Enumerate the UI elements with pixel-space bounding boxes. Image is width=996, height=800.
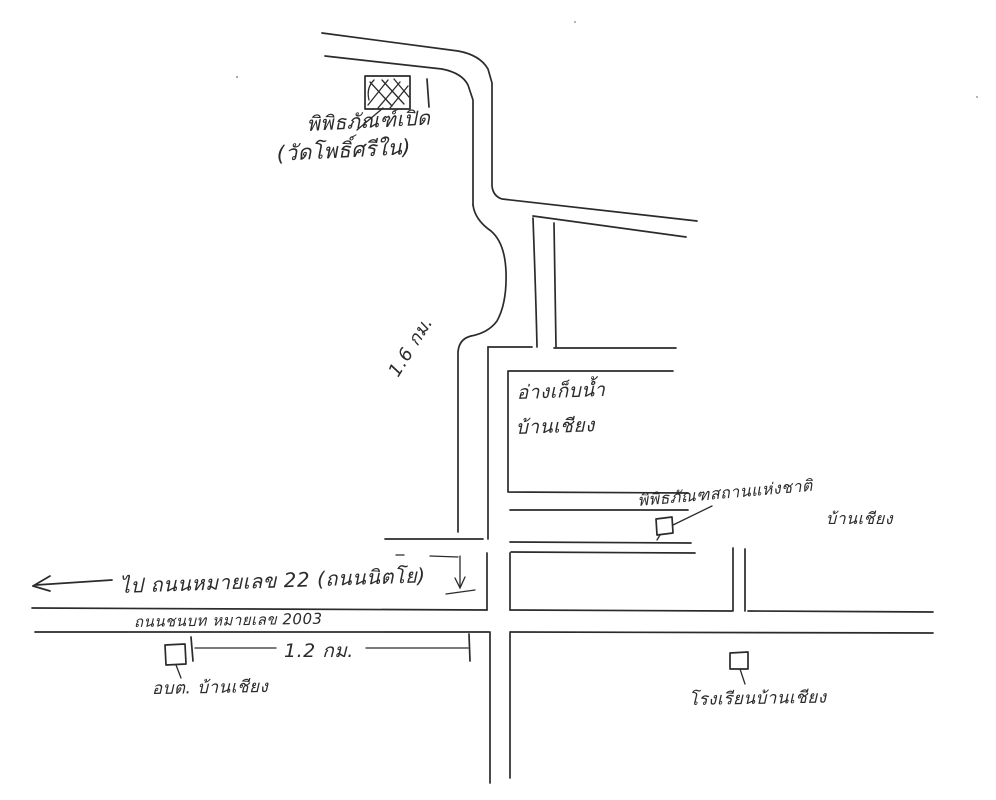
sao-marker-pole [191, 637, 193, 661]
connector-street-left-edge [533, 218, 537, 347]
sao-marker-tail [176, 665, 181, 678]
reservoir-label-line2: บ้านเชียง [515, 414, 596, 439]
road-network [32, 33, 933, 783]
school-label: โรงเรียนบ้านเชียง [689, 687, 828, 710]
dimension-1-6km [446, 556, 475, 594]
site-tick-mark [427, 79, 429, 107]
museum-street-bottom-edge-b [511, 552, 695, 553]
museum-street-bottom-edge-a [510, 542, 691, 543]
west-arrow-icon [33, 576, 112, 591]
west-arrow-shaft [36, 580, 112, 585]
west-stub-dash-b [430, 556, 458, 557]
ink-speck [236, 76, 238, 78]
open-air-museum-label-line2: (วัดโพธิ์ศรีใน) [276, 131, 412, 166]
road-2003-label: ถนนชนบท หมายเลข 2003 [134, 610, 323, 631]
museum-pointer-line [673, 506, 712, 525]
hatch-pattern [368, 79, 409, 108]
distance-1-2km-label: 1.2 กม. [284, 640, 354, 662]
national-museum-label-line2: บ้านเชียง [826, 509, 894, 528]
to-highway-label: ไป ถนนหมายเลข 22 (ถนนนิตโย) [119, 563, 426, 598]
slanted-street-bottom-edge [533, 216, 686, 237]
highway-top-edge-east [748, 611, 933, 612]
dimension-1-6km-tick [446, 590, 475, 594]
sao-marker [165, 637, 193, 678]
sao-office-label: อบต. บ้านเชียง [152, 677, 270, 699]
west-arrow-head-bottom [33, 586, 50, 591]
dimension-1-2km-tick-right [469, 634, 470, 661]
sao-marker-box [165, 644, 186, 665]
school-marker-box [730, 652, 748, 669]
reservoir-label-line1: อ่างเก็บน้ำ [516, 375, 606, 404]
national-museum-marker [656, 506, 712, 540]
sketch-map-canvas: พิพิธภัณฑ์เปิด (วัดโพธิ์ศรีใน) 1.6 กม. อ… [0, 0, 996, 800]
highway-bottom-edge-east [510, 632, 933, 633]
open-air-museum-label-line1: พิพิธภัณฑ์เปิด [306, 106, 432, 136]
school-marker [730, 652, 748, 684]
distance-1-6km-label: 1.6 กม. [384, 313, 437, 380]
highway-top-edge-west [32, 608, 487, 610]
highway-top-edge-mid [510, 610, 732, 611]
school-marker-tail [740, 669, 745, 684]
connector-street-right-edge [554, 223, 556, 347]
ink-speck [976, 96, 978, 98]
north-road-left-edge [458, 205, 506, 532]
ink-speck [574, 21, 576, 23]
national-museum-label-line1: พิพิธภัณฑสถานแห่งชาติ [637, 476, 815, 510]
sketch-map: พิพิธภัณฑ์เปิด (วัดโพธิ์ศรีใน) 1.6 กม. อ… [0, 0, 996, 800]
museum-marker-box [656, 517, 673, 535]
school-road [733, 548, 745, 611]
